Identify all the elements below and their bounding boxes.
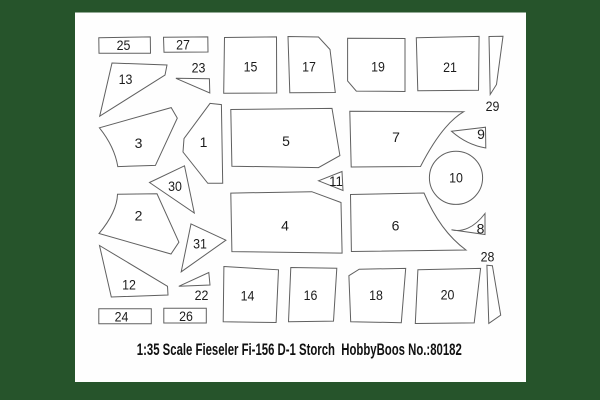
svg-text:6: 6 bbox=[392, 218, 400, 234]
svg-text:22: 22 bbox=[195, 287, 209, 303]
svg-text:8: 8 bbox=[477, 221, 485, 237]
svg-text:1: 1 bbox=[200, 134, 208, 150]
svg-text:11: 11 bbox=[329, 173, 343, 189]
svg-text:7: 7 bbox=[392, 129, 400, 145]
svg-text:12: 12 bbox=[122, 277, 136, 293]
svg-text:25: 25 bbox=[117, 37, 131, 53]
svg-text:21: 21 bbox=[443, 59, 457, 75]
svg-text:17: 17 bbox=[302, 59, 316, 75]
svg-text:23: 23 bbox=[192, 60, 206, 76]
svg-text:19: 19 bbox=[371, 59, 385, 75]
svg-text:2: 2 bbox=[135, 208, 143, 224]
svg-text:13: 13 bbox=[119, 71, 133, 87]
svg-text:15: 15 bbox=[244, 59, 258, 75]
svg-text:30: 30 bbox=[168, 178, 182, 194]
svg-text:14: 14 bbox=[241, 288, 255, 304]
svg-text:5: 5 bbox=[282, 133, 290, 149]
svg-text:20: 20 bbox=[441, 287, 455, 303]
svg-text:28: 28 bbox=[481, 249, 495, 265]
svg-text:18: 18 bbox=[369, 287, 383, 303]
svg-text:1:35 Scale Fieseler Fi-156 D-1: 1:35 Scale Fieseler Fi-156 D-1 Storch Ho… bbox=[137, 340, 462, 359]
svg-text:9: 9 bbox=[477, 126, 485, 142]
svg-text:31: 31 bbox=[193, 236, 207, 252]
svg-text:29: 29 bbox=[486, 98, 500, 114]
svg-text:4: 4 bbox=[281, 218, 289, 234]
svg-text:27: 27 bbox=[176, 37, 190, 53]
svg-text:16: 16 bbox=[304, 287, 318, 303]
svg-text:24: 24 bbox=[115, 309, 129, 325]
svg-text:3: 3 bbox=[135, 135, 143, 151]
svg-text:26: 26 bbox=[179, 308, 193, 324]
svg-text:10: 10 bbox=[449, 170, 463, 186]
